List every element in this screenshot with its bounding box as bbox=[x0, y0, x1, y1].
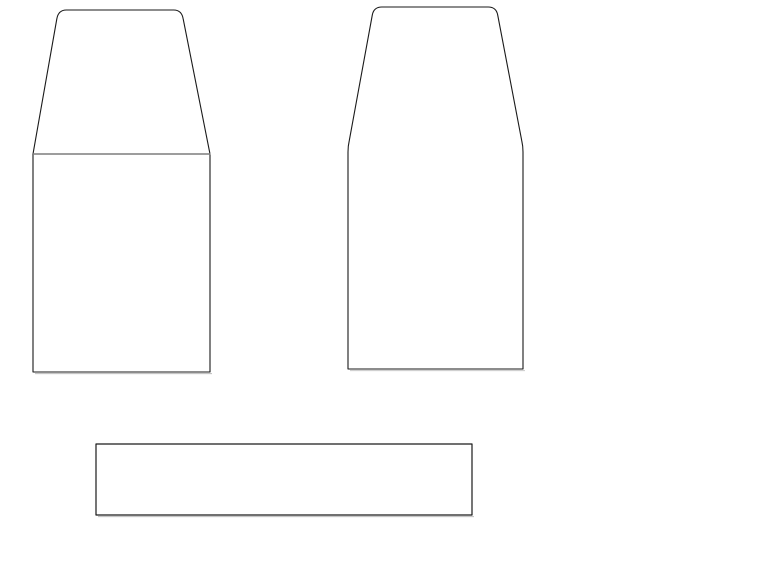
vector-drawing-surface bbox=[0, 0, 768, 576]
bottom-bar-rect[interactable] bbox=[96, 444, 472, 515]
left-container-top-trapezoid[interactable] bbox=[33, 10, 210, 154]
drawing-canvas bbox=[0, 0, 768, 576]
left-container-body-rect[interactable] bbox=[33, 154, 210, 372]
right-container-outline[interactable] bbox=[348, 7, 523, 369]
